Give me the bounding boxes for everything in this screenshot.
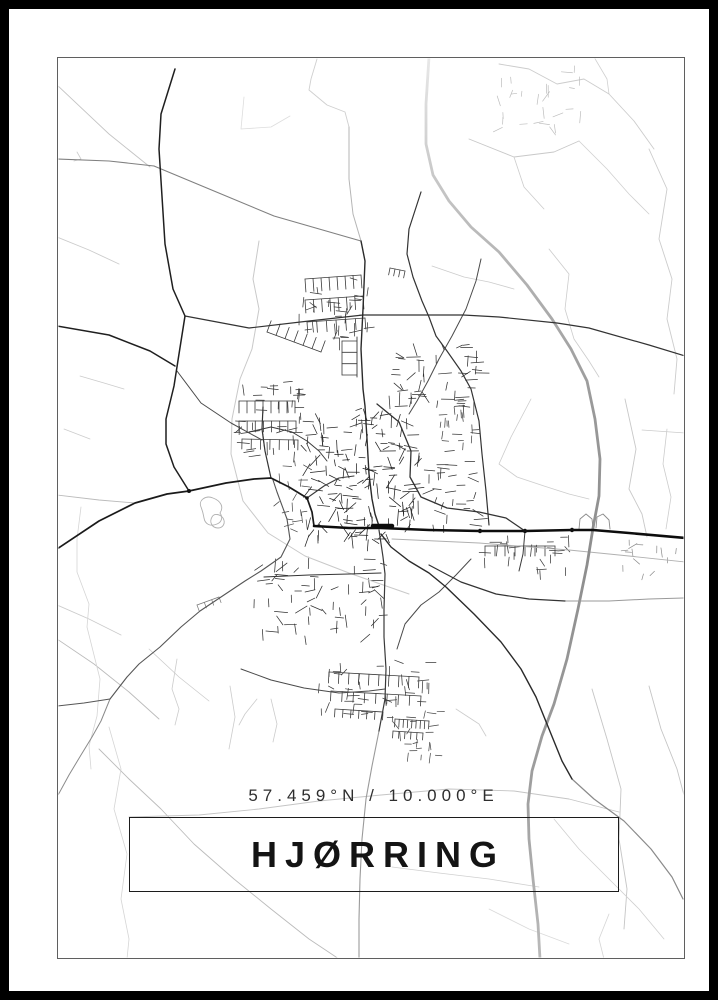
- city-name: HJØRRING: [243, 834, 505, 876]
- map-poster: 57.459°N / 10.000°E HJØRRING: [0, 0, 718, 1000]
- city-name-box: HJØRRING: [129, 817, 619, 892]
- coordinates-label: 57.459°N / 10.000°E: [57, 786, 685, 806]
